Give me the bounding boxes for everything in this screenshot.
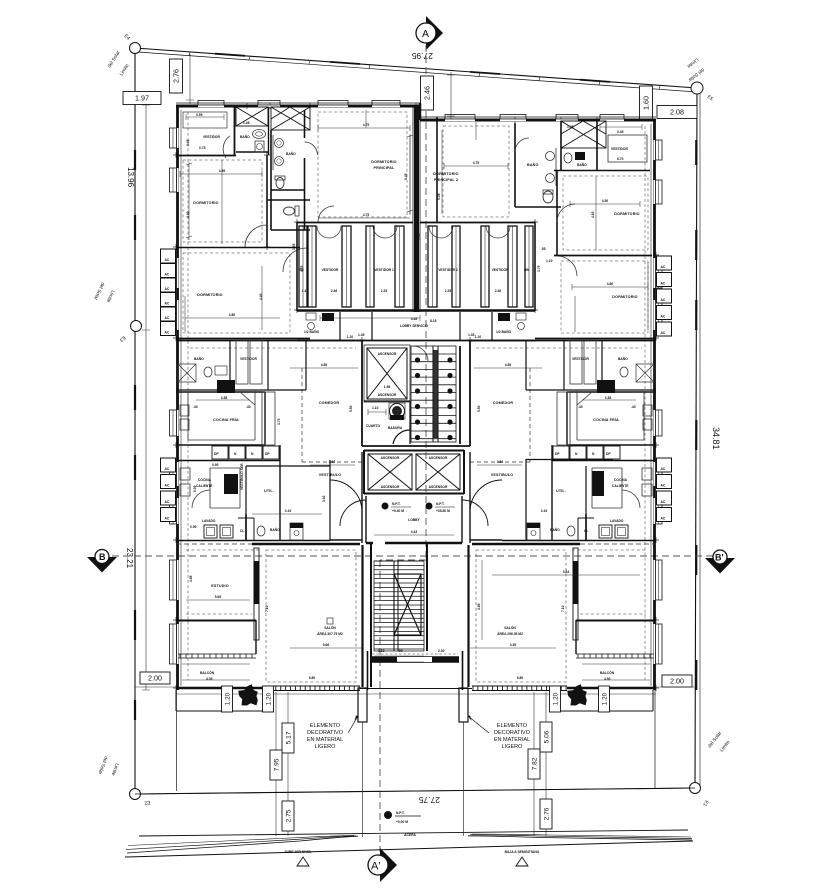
svg-text:VESTIDOR: VESTIDOR bbox=[240, 357, 257, 361]
svg-text:BAÑO: BAÑO bbox=[577, 162, 587, 167]
svg-text:3.62: 3.62 bbox=[322, 495, 326, 502]
svg-text:7.82: 7.82 bbox=[531, 757, 538, 770]
svg-text:3.48: 3.48 bbox=[411, 317, 418, 321]
svg-text:VESTIBULO SER.: VESTIBULO SER. bbox=[240, 462, 244, 490]
svg-text:AC: AC bbox=[165, 287, 170, 291]
svg-text:1.20: 1.20 bbox=[224, 692, 231, 705]
svg-text:LIGERO: LIGERO bbox=[502, 744, 524, 750]
svg-text:ELEMENTO: ELEMENTO bbox=[497, 723, 528, 729]
svg-text:AC: AC bbox=[165, 484, 170, 488]
svg-text:4.80: 4.80 bbox=[229, 313, 236, 317]
svg-text:4.56: 4.56 bbox=[219, 169, 226, 173]
svg-text:4.80: 4.80 bbox=[607, 282, 614, 286]
svg-text:VESTIDOR: VESTIDOR bbox=[203, 135, 220, 139]
svg-text:DORMITORIO: DORMITORIO bbox=[193, 201, 218, 205]
svg-text:BAÑO: BAÑO bbox=[618, 356, 628, 361]
svg-text:DP: DP bbox=[265, 452, 270, 456]
svg-text:1.98: 1.98 bbox=[384, 385, 391, 389]
svg-text:PRINCIPAL: PRINCIPAL bbox=[374, 166, 396, 170]
svg-text:AC: AC bbox=[165, 467, 170, 471]
svg-text:COCINA: COCINA bbox=[614, 478, 628, 482]
svg-text:B': B' bbox=[715, 553, 724, 563]
svg-text:CL: CL bbox=[584, 529, 588, 533]
svg-text:ÁREA 307.75 M2: ÁREA 307.75 M2 bbox=[317, 631, 343, 636]
svg-text:1.10: 1.10 bbox=[475, 335, 482, 339]
svg-text:AC: AC bbox=[165, 500, 170, 504]
svg-text:4.83: 4.83 bbox=[591, 211, 595, 218]
svg-text:5.06: 5.06 bbox=[543, 730, 550, 743]
svg-text:UTIL.: UTIL. bbox=[556, 489, 566, 493]
svg-text:0.59: 0.59 bbox=[196, 113, 203, 117]
svg-text:7.10: 7.10 bbox=[561, 605, 565, 612]
svg-text:RB: RB bbox=[299, 268, 304, 272]
svg-text:5.65: 5.65 bbox=[215, 595, 222, 599]
svg-text:4.75: 4.75 bbox=[363, 123, 370, 127]
svg-text:A': A' bbox=[371, 861, 380, 873]
svg-text:3.75: 3.75 bbox=[537, 265, 541, 272]
svg-text:COCINA FRÍA: COCINA FRÍA bbox=[213, 417, 239, 422]
svg-text:5.50: 5.50 bbox=[477, 405, 481, 412]
svg-text:34.81: 34.81 bbox=[711, 427, 721, 450]
svg-text:0.75: 0.75 bbox=[199, 146, 206, 150]
svg-text:27.75: 27.75 bbox=[418, 795, 440, 805]
svg-text:2.76: 2.76 bbox=[172, 69, 181, 83]
svg-text:LOBBY: LOBBY bbox=[408, 518, 420, 522]
svg-text:DECORATIVO: DECORATIVO bbox=[494, 730, 531, 736]
svg-text:5.17: 5.17 bbox=[285, 731, 292, 744]
svg-text:AC: AC bbox=[661, 298, 666, 302]
svg-text:6.70: 6.70 bbox=[617, 157, 624, 161]
svg-text:4.43: 4.43 bbox=[411, 530, 418, 534]
svg-text:ASCENSOR: ASCENSOR bbox=[429, 456, 448, 460]
svg-text:DP: DP bbox=[606, 452, 611, 456]
svg-text:ACERA: ACERA bbox=[404, 833, 416, 837]
svg-text:.40: .40 bbox=[246, 405, 251, 409]
svg-text:5.66: 5.66 bbox=[323, 643, 330, 647]
svg-text:4.40: 4.40 bbox=[259, 293, 263, 300]
svg-text:RB: RB bbox=[524, 268, 529, 272]
svg-text:AC: AC bbox=[165, 331, 170, 335]
svg-text:BAÑO: BAÑO bbox=[550, 527, 560, 532]
svg-text:B: B bbox=[99, 552, 106, 562]
svg-text:2.46: 2.46 bbox=[331, 289, 338, 293]
svg-text:9.80: 9.80 bbox=[309, 676, 316, 680]
svg-text:4.50: 4.50 bbox=[602, 199, 609, 203]
svg-text:BAÑO: BAÑO bbox=[270, 527, 280, 532]
svg-text:ESTUDIO: ESTUDIO bbox=[211, 584, 228, 588]
svg-text:4.89: 4.89 bbox=[505, 363, 512, 367]
svg-text:COMEDOR: COMEDOR bbox=[493, 401, 513, 405]
svg-text:2.25: 2.25 bbox=[445, 289, 452, 293]
svg-text:+35.80 M: +35.80 M bbox=[436, 509, 450, 513]
svg-text:AC: AC bbox=[165, 302, 170, 306]
svg-text:UTIL.: UTIL. bbox=[264, 489, 274, 493]
svg-text:DP: DP bbox=[555, 452, 560, 456]
svg-text:1.10: 1.10 bbox=[347, 335, 354, 339]
svg-text:DORMITORIO: DORMITORIO bbox=[612, 295, 637, 299]
svg-text:AC: AC bbox=[165, 258, 170, 262]
svg-text:3.15: 3.15 bbox=[541, 509, 548, 513]
svg-text:EN MATERIAL: EN MATERIAL bbox=[494, 737, 530, 743]
svg-text:+9.40 M: +9.40 M bbox=[392, 509, 404, 513]
svg-text:VESTIDOR 1: VESTIDOR 1 bbox=[374, 268, 394, 272]
svg-text:DP: DP bbox=[214, 452, 219, 456]
svg-text:ÁREA 296.05 M2: ÁREA 296.05 M2 bbox=[497, 631, 523, 636]
svg-text:BAÑO: BAÑO bbox=[240, 134, 250, 139]
svg-text:3.84: 3.84 bbox=[563, 570, 570, 574]
svg-text:VESTIBULO: VESTIBULO bbox=[319, 473, 341, 477]
svg-text:BAJA A SEMISÓTANO: BAJA A SEMISÓTANO bbox=[505, 849, 540, 854]
svg-text:N.P.T.: N.P.T. bbox=[392, 502, 401, 506]
svg-text:LAVADO: LAVADO bbox=[610, 519, 624, 523]
svg-text:+0.00 M: +0.00 M bbox=[396, 820, 408, 824]
svg-text:AC: AC bbox=[165, 273, 170, 277]
svg-text:AC: AC bbox=[661, 467, 666, 471]
svg-text:3.38: 3.38 bbox=[605, 396, 612, 400]
svg-text:SALÓN: SALÓN bbox=[324, 625, 336, 630]
svg-text:4.89: 4.89 bbox=[321, 363, 328, 367]
svg-text:4.05: 4.05 bbox=[206, 677, 213, 681]
svg-text:3.38: 3.38 bbox=[221, 396, 228, 400]
svg-text:AC: AC bbox=[661, 484, 666, 488]
svg-text:2.00: 2.00 bbox=[670, 677, 684, 686]
svg-text:1.45: 1.45 bbox=[567, 125, 574, 129]
svg-text:8.18: 8.18 bbox=[430, 319, 437, 323]
svg-text:CL: CL bbox=[240, 529, 244, 533]
svg-text:AC: AC bbox=[661, 500, 666, 504]
svg-text:.40: .40 bbox=[578, 405, 583, 409]
svg-text:4.60: 4.60 bbox=[186, 211, 190, 218]
svg-text:LAVADO: LAVADO bbox=[202, 519, 216, 523]
svg-text:VESTIDOR: VESTIDOR bbox=[492, 268, 509, 272]
svg-text:0.90: 0.90 bbox=[190, 525, 197, 529]
svg-text:4.85: 4.85 bbox=[477, 603, 481, 610]
svg-text:2.30: 2.30 bbox=[438, 649, 445, 653]
svg-text:1.60: 1.60 bbox=[642, 96, 651, 110]
svg-text:1.10: 1.10 bbox=[378, 649, 385, 653]
svg-text:4.85: 4.85 bbox=[189, 575, 193, 582]
svg-text:BALCÓN: BALCÓN bbox=[600, 670, 615, 675]
svg-text:BALCÓN: BALCÓN bbox=[200, 670, 215, 675]
svg-text:0.65: 0.65 bbox=[186, 139, 190, 146]
svg-text:1.97: 1.97 bbox=[135, 94, 149, 103]
svg-text:1.35: 1.35 bbox=[468, 333, 475, 337]
svg-text:.90: .90 bbox=[398, 649, 403, 653]
svg-text:AC: AC bbox=[661, 265, 666, 269]
svg-text:SALÓN: SALÓN bbox=[504, 625, 516, 630]
svg-text:.40: .40 bbox=[631, 405, 636, 409]
svg-text:AC: AC bbox=[661, 517, 666, 521]
svg-text:ASCENSOR: ASCENSOR bbox=[429, 485, 448, 489]
svg-text:EN MATERIAL: EN MATERIAL bbox=[307, 737, 343, 743]
svg-text:7.95: 7.95 bbox=[273, 758, 280, 771]
svg-text:COCINA: COCINA bbox=[198, 478, 212, 482]
svg-text:4.50: 4.50 bbox=[604, 677, 611, 681]
svg-text:3.66: 3.66 bbox=[329, 460, 336, 464]
svg-text:2.00: 2.00 bbox=[148, 674, 162, 683]
svg-text:1.20: 1.20 bbox=[552, 692, 559, 705]
svg-text:AC: AC bbox=[661, 282, 666, 286]
svg-text:3.75: 3.75 bbox=[277, 418, 281, 425]
svg-text:N.P.T.: N.P.T. bbox=[396, 811, 405, 815]
svg-text:1.45: 1.45 bbox=[302, 289, 309, 293]
svg-text:.55: .55 bbox=[541, 247, 546, 251]
svg-text:0.45: 0.45 bbox=[617, 130, 624, 134]
svg-text:3.15: 3.15 bbox=[285, 509, 292, 513]
svg-text:2.25: 2.25 bbox=[381, 289, 388, 293]
svg-text:5.50: 5.50 bbox=[349, 405, 353, 412]
svg-text:AC: AC bbox=[661, 331, 666, 335]
svg-text:2.46: 2.46 bbox=[495, 289, 502, 293]
svg-text:4.35: 4.35 bbox=[510, 643, 517, 647]
svg-text:1.10: 1.10 bbox=[546, 259, 553, 263]
svg-text:VESTIBULO: VESTIBULO bbox=[491, 473, 513, 477]
svg-text:9.80: 9.80 bbox=[517, 676, 524, 680]
svg-text:4.75: 4.75 bbox=[363, 213, 370, 217]
svg-text:LOBBY SERVICIO: LOBBY SERVICIO bbox=[400, 324, 429, 328]
svg-text:DECORATIVO: DECORATIVO bbox=[307, 730, 344, 736]
svg-text:1.20: 1.20 bbox=[265, 692, 272, 705]
svg-text:ASCENSOR: ASCENSOR bbox=[381, 456, 400, 460]
svg-text:BASURA: BASURA bbox=[388, 426, 403, 430]
svg-text:A: A bbox=[422, 28, 429, 40]
svg-text:DORMITORIO: DORMITORIO bbox=[614, 212, 639, 216]
svg-text:2.46: 2.46 bbox=[423, 86, 432, 100]
svg-text:AC: AC bbox=[165, 517, 170, 521]
svg-text:VESTIDOR: VESTIDOR bbox=[572, 357, 589, 361]
svg-text:LIGERO: LIGERO bbox=[315, 744, 337, 750]
svg-text:CUARTO: CUARTO bbox=[366, 424, 380, 428]
svg-text:5.49: 5.49 bbox=[404, 173, 408, 180]
svg-text:2.76: 2.76 bbox=[543, 807, 550, 820]
svg-text:13.96: 13.96 bbox=[126, 167, 135, 188]
svg-text:COMEDOR: COMEDOR bbox=[319, 401, 339, 405]
svg-text:BAÑO: BAÑO bbox=[527, 162, 538, 167]
svg-text:BAÑO: BAÑO bbox=[286, 151, 296, 156]
svg-text:1.20: 1.20 bbox=[601, 692, 608, 705]
svg-text:CALIENTE: CALIENTE bbox=[196, 484, 213, 488]
svg-text:ASCENSOR: ASCENSOR bbox=[378, 352, 397, 356]
svg-text:0.59: 0.59 bbox=[193, 485, 197, 492]
svg-text:1.10: 1.10 bbox=[372, 406, 379, 410]
svg-text:ASCENSOR: ASCENSOR bbox=[378, 393, 397, 397]
svg-text:SUBE 1ER NIVEL: SUBE 1ER NIVEL bbox=[284, 850, 311, 854]
svg-text:ASCENSOR: ASCENSOR bbox=[381, 485, 400, 489]
svg-text:1.35: 1.35 bbox=[358, 333, 365, 337]
svg-text:27.95: 27.95 bbox=[411, 51, 433, 61]
svg-text:VESTIDOR: VESTIDOR bbox=[611, 147, 628, 151]
svg-text:4.75: 4.75 bbox=[473, 161, 480, 165]
svg-text:1/2 BAÑO: 1/2 BAÑO bbox=[496, 329, 512, 334]
svg-text:N.P.T.: N.P.T. bbox=[436, 502, 445, 506]
svg-text:BAÑO: BAÑO bbox=[194, 356, 204, 361]
svg-text:AC: AC bbox=[661, 315, 666, 319]
svg-text:COCINA FRÍA: COCINA FRÍA bbox=[593, 417, 619, 422]
svg-text:CALIENTE: CALIENTE bbox=[612, 484, 629, 488]
svg-text:3.66: 3.66 bbox=[497, 460, 504, 464]
svg-text:VESTIDOR 2: VESTIDOR 2 bbox=[438, 268, 458, 272]
svg-text:.40: .40 bbox=[193, 405, 198, 409]
svg-text:2.08: 2.08 bbox=[670, 108, 684, 117]
svg-text:VESTIDOR: VESTIDOR bbox=[322, 268, 339, 272]
svg-text:DORMITORIO: DORMITORIO bbox=[371, 160, 396, 164]
svg-text:23.21: 23.21 bbox=[125, 548, 134, 569]
svg-text:7.10: 7.10 bbox=[265, 605, 269, 612]
svg-text:DORMITORIO: DORMITORIO bbox=[197, 293, 222, 297]
svg-text:2.75: 2.75 bbox=[285, 809, 292, 822]
svg-text:ELEMENTO: ELEMENTO bbox=[310, 723, 341, 729]
svg-text:AC: AC bbox=[165, 316, 170, 320]
svg-text:0.90: 0.90 bbox=[212, 463, 219, 467]
